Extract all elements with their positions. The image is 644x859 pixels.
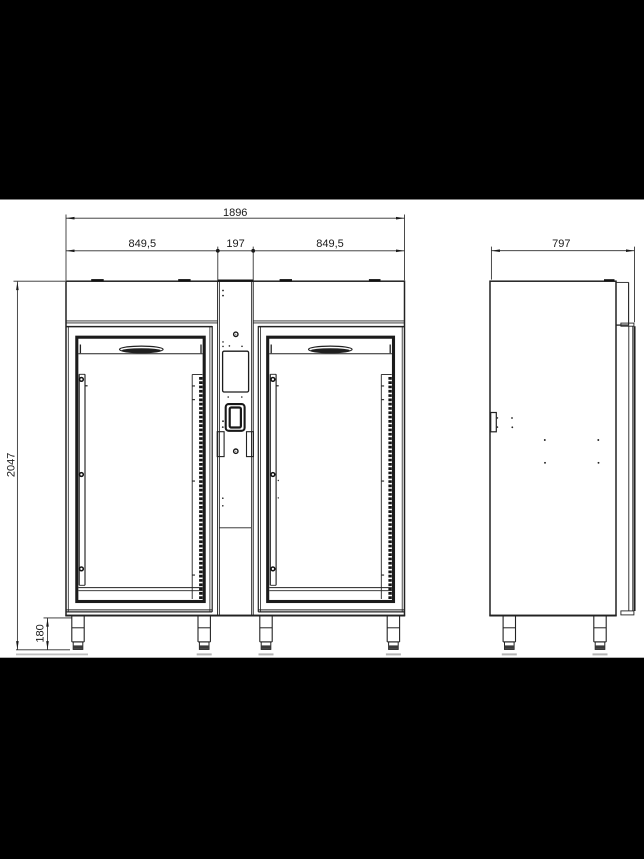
svg-text:849,5: 849,5 xyxy=(129,238,157,250)
svg-text:797: 797 xyxy=(552,238,570,250)
svg-text:1896: 1896 xyxy=(223,207,247,219)
svg-text:197: 197 xyxy=(226,238,244,250)
svg-text:2047: 2047 xyxy=(6,453,18,477)
svg-text:849,5: 849,5 xyxy=(316,238,344,250)
svg-text:180: 180 xyxy=(35,624,47,642)
